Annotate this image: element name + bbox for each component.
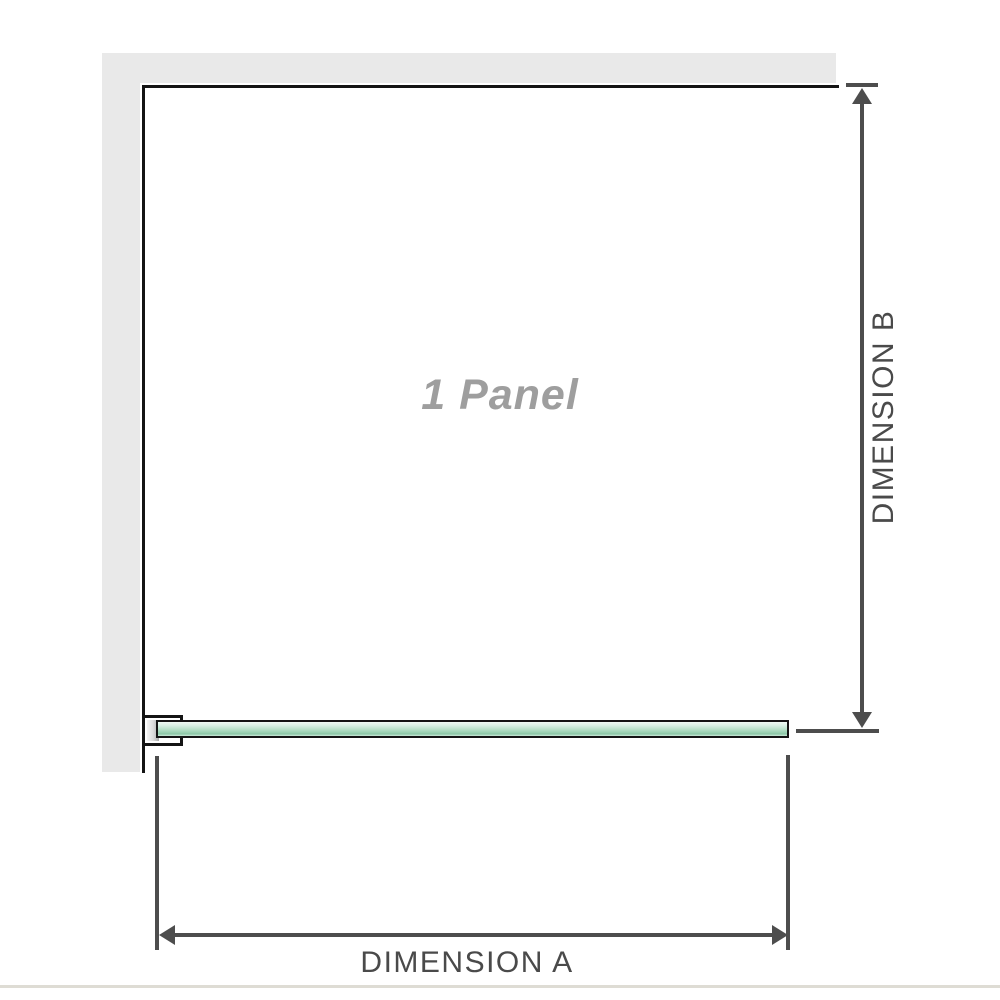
arrow-up-icon [852,88,872,104]
dimension-b-tick-top [846,83,878,87]
panel-dimension-diagram: 1 Panel DIMENSION B DIMENSION A [0,0,1000,1000]
dimension-b-tick-bottom [796,729,879,733]
panel-outline-left [142,85,145,773]
dimension-b-line [860,97,864,717]
arrow-right-icon [772,925,788,945]
dimension-a-line [166,933,780,937]
panel-count-label: 1 Panel [380,370,620,420]
glass-panel-bar [156,720,789,738]
wall-segment-top [102,53,836,83]
panel-outline-top [142,85,839,88]
dimension-b-label: DIMENSION B [867,310,901,525]
arrow-left-icon [159,925,175,945]
bottom-baseline [0,985,1000,988]
wall-segment-left [102,53,140,772]
dimension-a-label: DIMENSION A [360,946,573,980]
arrow-down-icon [852,712,872,728]
dimension-a-extension-right [786,755,790,950]
dimension-a-extension-left [155,756,159,950]
